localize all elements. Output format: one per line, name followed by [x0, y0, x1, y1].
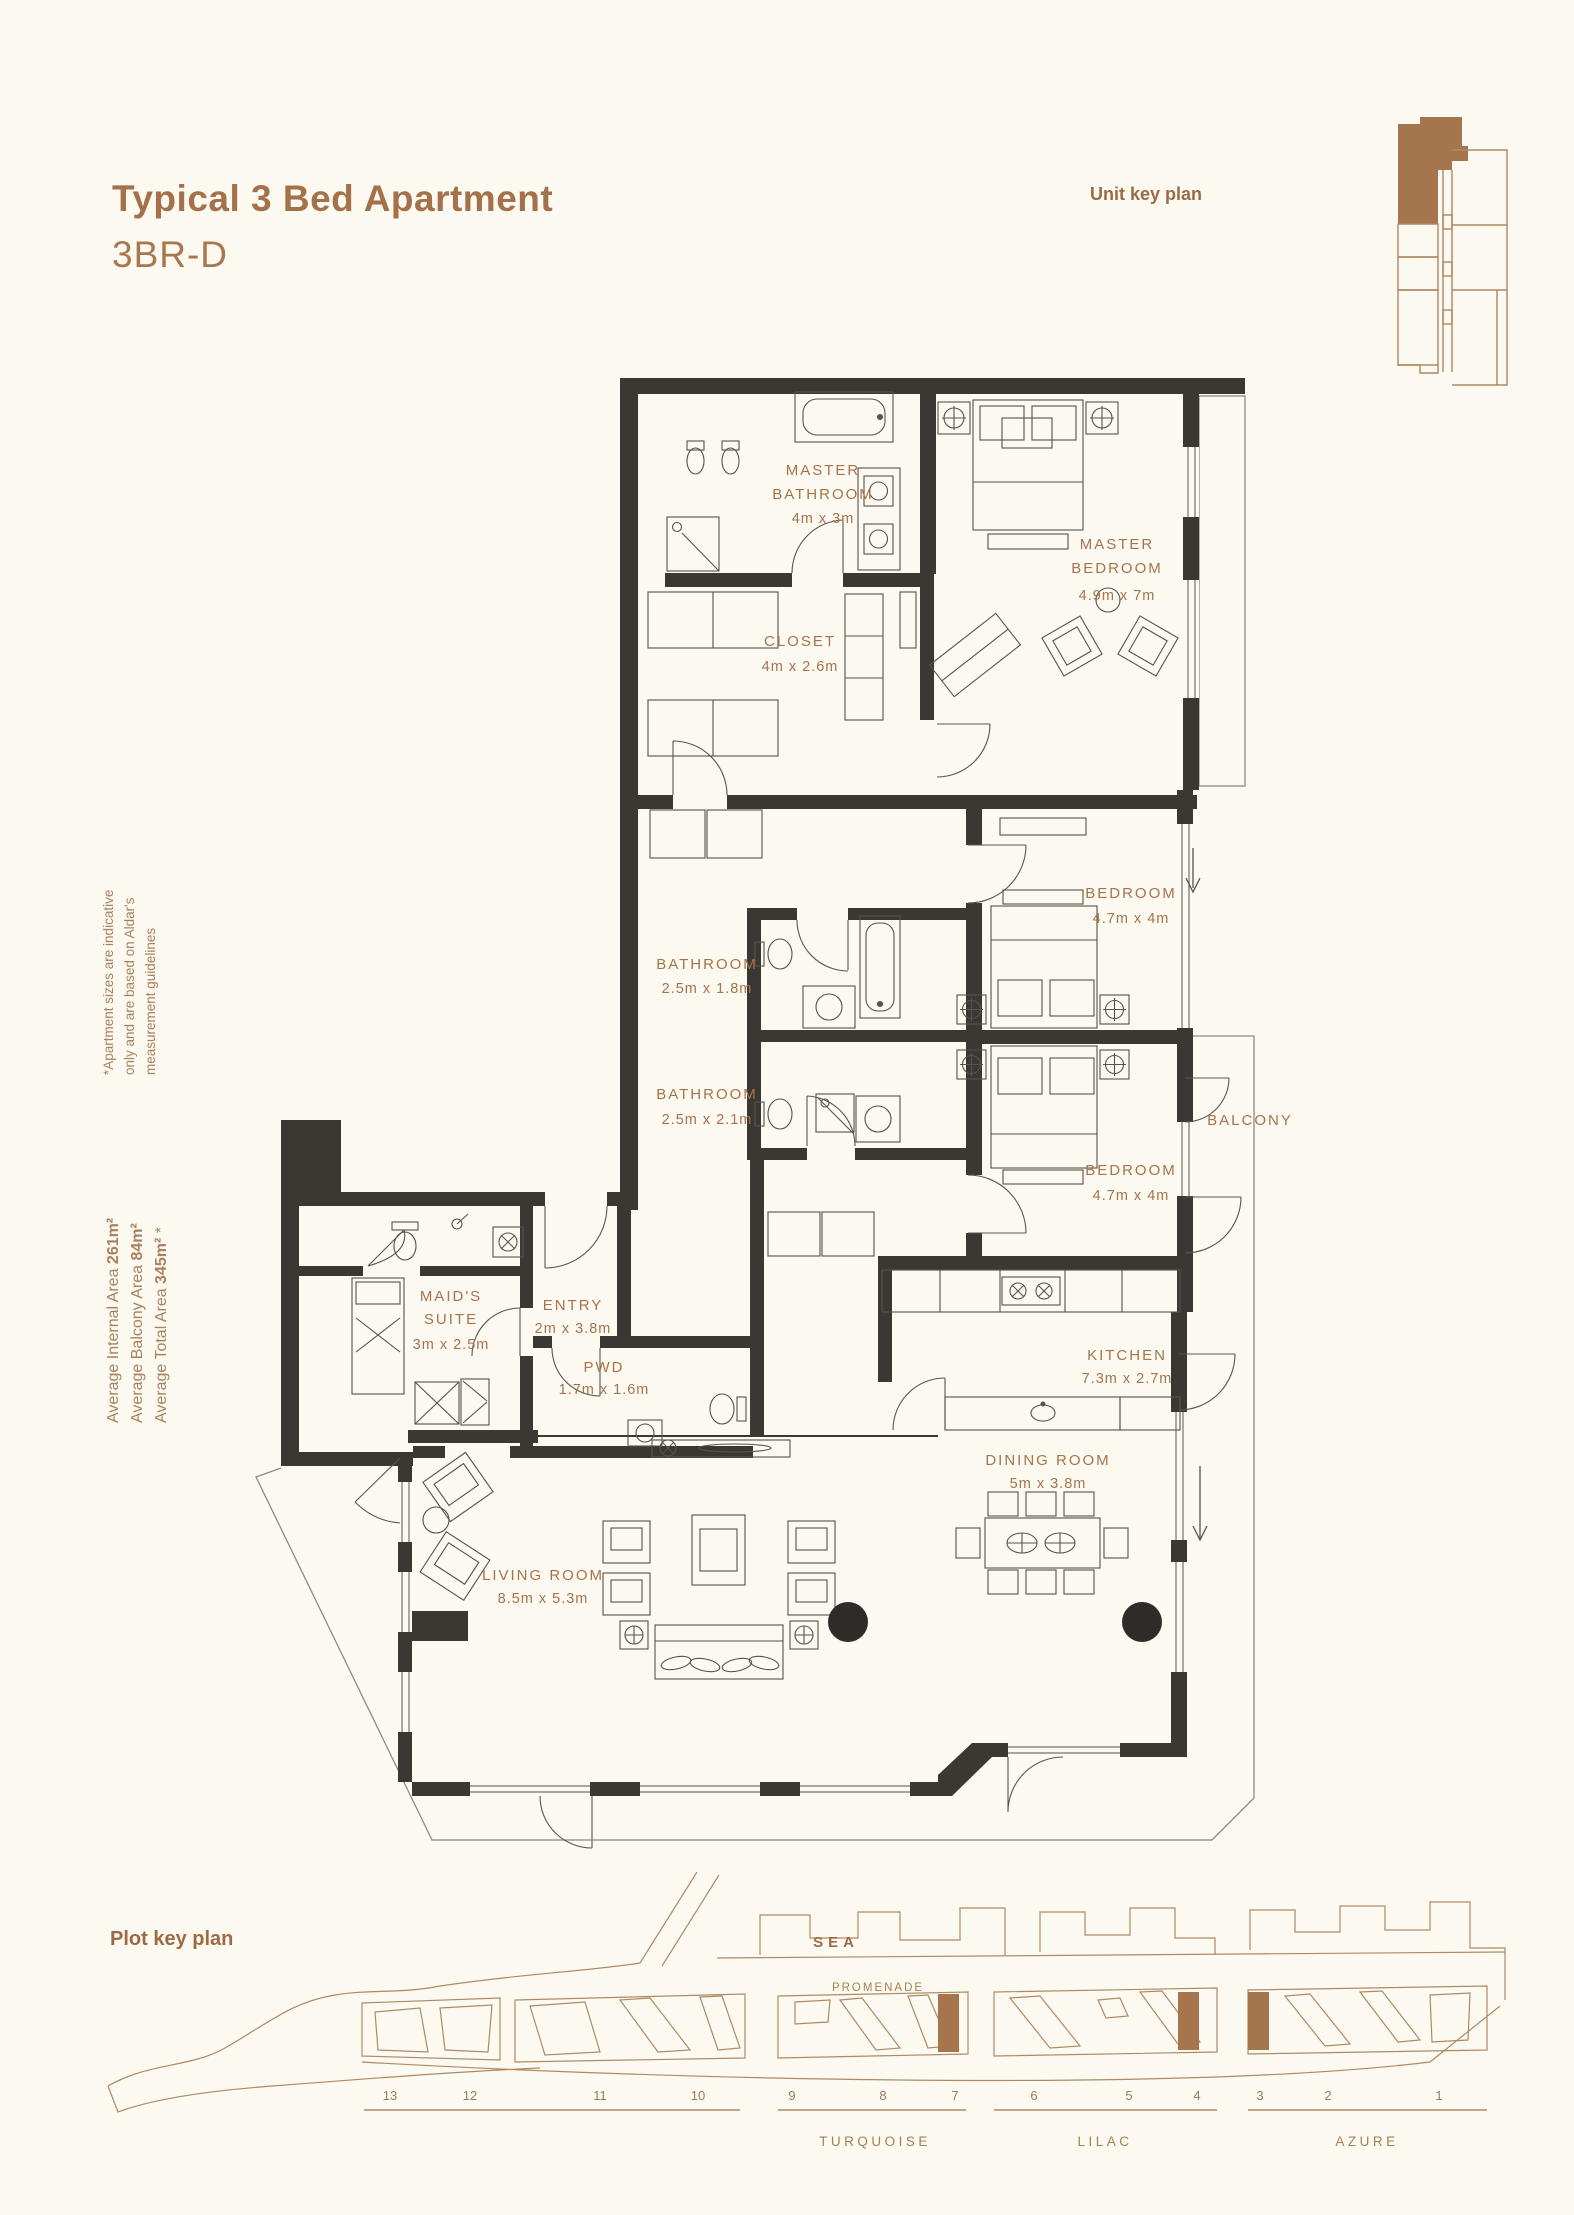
- room-dims: 4.7m x 4m: [1093, 1188, 1170, 1204]
- room-label: BATHROOM: [772, 486, 874, 503]
- plot-number: 12: [463, 2088, 477, 2103]
- master-bathroom-fixtures: [667, 392, 900, 571]
- room-dims: 4m x 2.6m: [762, 659, 839, 675]
- plot-number: 8: [879, 2088, 886, 2103]
- plot-number: 2: [1324, 2088, 1331, 2103]
- unit-key-plan: [1398, 117, 1507, 385]
- plot-number: 3: [1256, 2088, 1263, 2103]
- room-label: BATHROOM: [656, 956, 758, 973]
- unit-key-plan-highlight: [1398, 117, 1468, 224]
- brochure-page: Typical 3 Bed Apartment 3BR-D Unit key p…: [0, 0, 1574, 2215]
- closet-wardrobes: [648, 592, 916, 858]
- plot-number: 10: [691, 2088, 705, 2103]
- room-dims: 8.5m x 5.3m: [498, 1591, 589, 1607]
- room-dims: 5m x 3.8m: [1010, 1476, 1087, 1492]
- bathroom1-fixtures: [755, 916, 900, 1028]
- room-label: BATHROOM: [656, 1086, 758, 1103]
- plot-number: 11: [593, 2088, 607, 2103]
- room-dims: 2.5m x 2.1m: [662, 1112, 753, 1128]
- room-label: KITCHEN: [1087, 1347, 1167, 1364]
- room-label: CLOSET: [764, 633, 836, 650]
- living-room-furniture: [420, 1440, 835, 1679]
- room-label: BEDROOM: [1085, 885, 1177, 902]
- plot-highlights: [938, 1992, 1269, 2052]
- room-label: SUITE: [424, 1311, 478, 1328]
- plot-number: 7: [951, 2088, 958, 2103]
- plot-number: 4: [1193, 2088, 1200, 2103]
- room-label: MASTER: [786, 462, 861, 479]
- columns: [828, 1602, 1162, 1642]
- room-dims: 1.7m x 1.6m: [559, 1382, 650, 1398]
- room-dims: 4.9m x 7m: [1079, 588, 1156, 604]
- room-label: LIVING ROOM: [482, 1567, 604, 1584]
- plot-number: 1: [1435, 2088, 1442, 2103]
- district-label: LILAC: [1077, 2134, 1132, 2149]
- district-label: AZURE: [1335, 2134, 1398, 2149]
- dining-furniture: [956, 1492, 1128, 1594]
- plot-key-plan: SEA PROMENADE 13 12 11 10 9 8 7 6 5 4 3 …: [108, 1872, 1505, 2149]
- room-dims: 4.7m x 4m: [1093, 911, 1170, 927]
- room-label: BALCONY: [1207, 1112, 1293, 1129]
- room-label: BEDROOM: [1085, 1162, 1177, 1179]
- plot-number: 9: [788, 2088, 795, 2103]
- sea-label: SEA: [813, 1934, 859, 1951]
- room-label: BEDROOM: [1071, 560, 1163, 577]
- plot-map-texts: SEA PROMENADE 13 12 11 10 9 8 7 6 5 4 3 …: [383, 1934, 1443, 2149]
- promenade-label: PROMENADE: [832, 1982, 924, 1994]
- plot-number: 5: [1125, 2088, 1132, 2103]
- plot-number: 6: [1030, 2088, 1037, 2103]
- room-label: DINING ROOM: [985, 1452, 1110, 1469]
- plot-map-lines: [108, 1872, 1505, 2112]
- plot-number: 13: [383, 2088, 397, 2103]
- room-dims: 2.5m x 1.8m: [662, 981, 753, 997]
- room-dims: 7.3m x 2.7m: [1082, 1371, 1173, 1387]
- room-label: PWD: [584, 1359, 625, 1376]
- floor-plan: MASTER BATHROOM 4m x 3m MASTER BEDROOM 4…: [256, 378, 1293, 1848]
- room-dims: 2m x 3.8m: [535, 1321, 612, 1337]
- room-label: ENTRY: [543, 1297, 604, 1314]
- room-label: MASTER: [1080, 536, 1155, 553]
- room-dims: 3m x 2.5m: [413, 1337, 490, 1353]
- district-label: TURQUOISE: [819, 2134, 931, 2149]
- room-label: MAID'S: [420, 1288, 482, 1305]
- pwd-fixtures: [628, 1394, 746, 1446]
- room-dims: 4m x 3m: [792, 511, 855, 527]
- plan-canvas: MASTER BATHROOM 4m x 3m MASTER BEDROOM 4…: [0, 0, 1574, 2215]
